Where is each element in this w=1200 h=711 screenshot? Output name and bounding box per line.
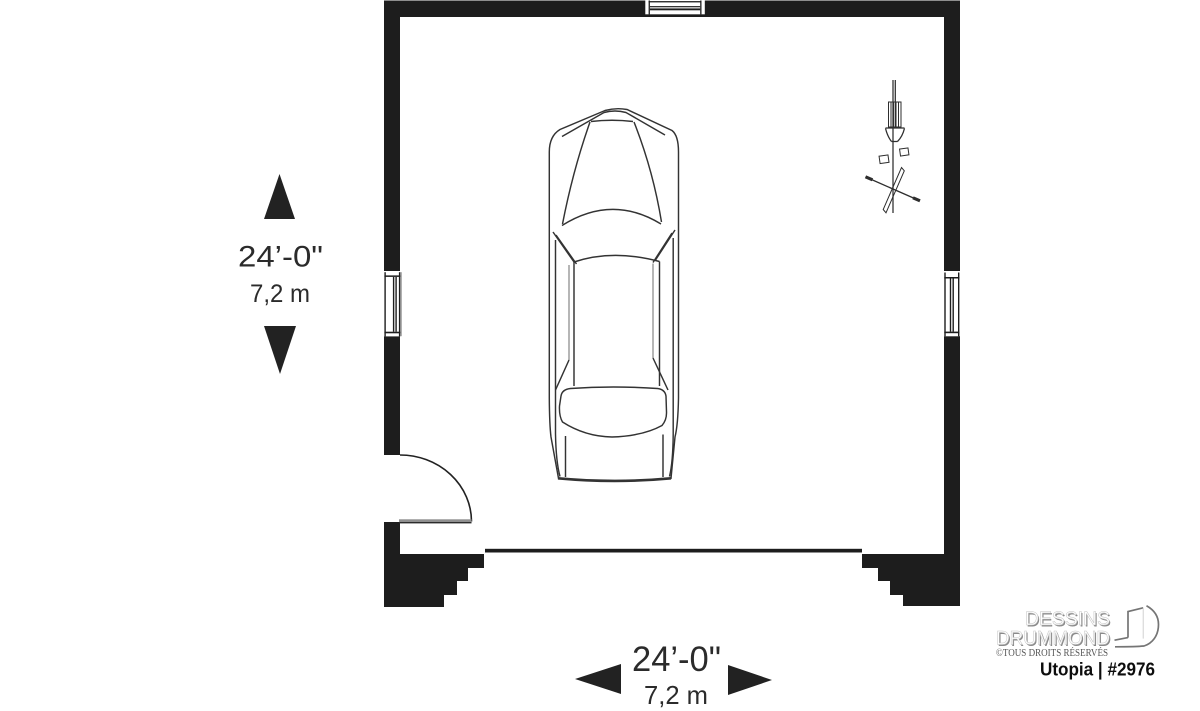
svg-text:DESSINS: DESSINS [1025, 609, 1110, 630]
svg-text:24’-0": 24’-0" [632, 639, 721, 679]
svg-text:Utopia | #2976: Utopia | #2976 [1040, 660, 1155, 680]
svg-text:7,2 m: 7,2 m [250, 280, 310, 308]
svg-text:24’-0": 24’-0" [238, 241, 323, 274]
svg-text:©TOUS DROITS RÉSERVÉS: ©TOUS DROITS RÉSERVÉS [996, 647, 1108, 659]
svg-text:7,2 m: 7,2 m [644, 680, 708, 710]
svg-text:DRUMMOND: DRUMMOND [996, 629, 1110, 650]
